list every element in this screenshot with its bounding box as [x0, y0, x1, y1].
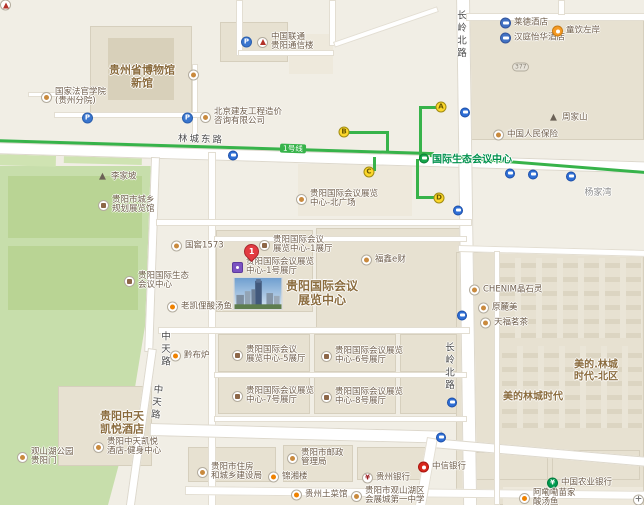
banky-icon: ¥: [362, 473, 373, 484]
area-label-meidi-lincheng-north: 美的.林城时代-北区: [574, 360, 618, 383]
poi-planning-hall[interactable]: 贵阳市城乡规划展览馆: [98, 196, 155, 214]
metro-station[interactable]: 国际生态会议中心: [419, 151, 512, 166]
poi-law-college[interactable]: 国家法官学院(贵州分院): [41, 88, 106, 106]
poi-badge-377[interactable]: 377: [512, 63, 529, 72]
metro-exit-C[interactable]: C: [364, 167, 375, 178]
poi-guizhou-bank[interactable]: ¥贵州银行: [362, 473, 410, 484]
map-canvas[interactable]: PP国家法官学院(贵州分院)P中国联通贵阳通信楼北京建友工程造价咨询有限公司莱德…: [0, 0, 644, 505]
dot-icon: [469, 285, 480, 296]
rest-icon: [291, 490, 302, 501]
poi-label: 贵阳国际生态会议中心: [138, 272, 189, 290]
poi-label: 贵阳国际会议展览中心-北广场: [310, 190, 378, 208]
poi-fuxin-ecai[interactable]: 福鑫e财: [361, 255, 406, 266]
park-field: [8, 246, 138, 310]
area-label-exhibition-center: 贵阳国际会议展览中心: [286, 280, 358, 308]
bldg-icon: [124, 276, 135, 287]
metro-exit-A[interactable]: A: [436, 102, 447, 113]
bankgreen-icon: ¥: [547, 478, 558, 489]
dot-icon: [200, 112, 211, 123]
poi-hall-6[interactable]: 贵阳国际会议展览中心-6号展厅: [321, 347, 403, 365]
cafe-icon: [552, 26, 563, 37]
poi-hall-1[interactable]: 贵阳国际会议展览中心-1展厅: [259, 236, 332, 254]
bus-icon: [528, 169, 538, 179]
area-label-meidi-lincheng: 美的林城时代: [503, 391, 563, 403]
road: [158, 327, 470, 334]
bus-icon: [460, 107, 470, 117]
hotel-icon: [500, 33, 511, 44]
poi-label: 贵阳国际会议展览中心-1展厅: [273, 236, 332, 254]
road-label: 林城东路: [178, 130, 224, 146]
purple-icon: [232, 262, 243, 273]
poi-laide-hotel[interactable]: 莱德酒店: [500, 18, 548, 29]
road: [214, 236, 467, 242]
poi-label: CHENIM晶石灵: [483, 286, 542, 295]
poi-jinxianglou[interactable]: 锦湘楼: [268, 472, 308, 483]
road: [329, 0, 336, 46]
poi-laokaili-fish[interactable]: 老凯俚酸汤鱼: [167, 302, 232, 313]
poi-hyatt-gym[interactable]: 贵阳中天凯悦酒店-健身中心: [93, 438, 161, 456]
poi-tucaiguan[interactable]: 贵州土菜馆: [291, 490, 348, 501]
poi-label: 贵阳国际会议展览中心-5展厅: [246, 346, 305, 364]
bus-stop-icon[interactable]: [436, 424, 446, 443]
poi-label: 贵阳市邮政管理局: [301, 449, 344, 467]
poi-zhoujiashan[interactable]: ▲周家山: [548, 113, 588, 124]
poi-abc-bank[interactable]: ¥中国农业银行: [547, 478, 612, 489]
poi-label: 贵阳国际会议展览中心-1号展厅: [246, 258, 314, 276]
area-label-yangjiawan: 杨家湾: [584, 188, 611, 198]
bus-icon: [436, 432, 446, 442]
poi-lijiapo[interactable]: ▲李家坡: [97, 172, 137, 183]
bus-icon: [566, 171, 576, 181]
road-label: 中天路: [157, 331, 171, 369]
metro-line-label: 1号线: [280, 144, 306, 154]
poi-parking-museum-west[interactable]: P: [82, 113, 93, 124]
road-south: [150, 423, 442, 444]
exit-path: [386, 131, 389, 152]
bus-stop-icon[interactable]: [566, 163, 576, 182]
bldg-icon: [232, 391, 243, 402]
poi-corner-cut[interactable]: [0, 0, 11, 11]
dot-icon: [93, 442, 104, 453]
poi-yuanlumei[interactable]: 原麓美: [478, 303, 518, 314]
dot-icon: [493, 130, 504, 141]
bldg-icon: [98, 200, 109, 211]
road: [236, 0, 243, 56]
poi-eco-conference-center[interactable]: 贵阳国际生态会议中心: [124, 272, 189, 290]
poi-label: 贵阳市观山湖区会展城第一中学: [365, 487, 425, 505]
poi-label: 锦湘楼: [282, 473, 308, 482]
area-label-guizhou-museum: 贵州省博物馆新馆: [109, 64, 175, 89]
mtn-icon: ▲: [548, 113, 559, 124]
poi-photo-thumbnail[interactable]: [233, 277, 283, 310]
poi-label: 国窖1573: [185, 242, 224, 251]
poi-housing-bureau[interactable]: 贵阳市住房和城乡建设局: [197, 463, 262, 481]
rest-icon: [268, 472, 279, 483]
poi-label: 贵阳市住房和城乡建设局: [211, 463, 262, 481]
poi-no1-middle-school[interactable]: 贵阳市观山湖区会展城第一中学: [351, 487, 425, 505]
bus-icon: [453, 205, 463, 215]
metro-station-label: 国际生态会议中心: [432, 151, 512, 166]
dot-icon: [478, 303, 489, 314]
dot-icon: [41, 92, 52, 103]
poi-label: 天福茗茶: [494, 319, 528, 328]
metro-exit-D[interactable]: D: [434, 193, 445, 204]
road-label: 中天路: [146, 383, 164, 422]
road-label: 长岭北路: [441, 342, 455, 392]
poi-postal-bureau[interactable]: 贵阳市邮政管理局: [287, 449, 344, 467]
park-icon: P: [182, 113, 193, 124]
poi-parking-museum-east[interactable]: P: [182, 113, 193, 124]
road: [156, 219, 472, 226]
poi-zuoan-cafe[interactable]: 童饮左岸: [552, 26, 600, 37]
poi-label: 中国人民保险: [507, 131, 558, 140]
dot-icon: [188, 70, 199, 81]
bus-icon: [447, 397, 457, 407]
poi-label: 贵州土菜馆: [305, 491, 348, 500]
metro-exit-B[interactable]: B: [339, 127, 350, 138]
redb-icon: [0, 0, 11, 11]
poi-qianbulu[interactable]: 黔布炉: [170, 351, 210, 362]
bankred-icon: [418, 462, 429, 473]
poi-label: 中信银行: [432, 463, 466, 472]
park-icon: P: [82, 113, 93, 124]
bldg-icon: [321, 351, 332, 362]
poi-label: 福鑫e财: [375, 256, 406, 265]
rest-icon: [519, 493, 530, 504]
poi-alele-fish[interactable]: 阿嘞嘞苗家酸汤鱼: [519, 489, 576, 505]
poi-label: 贵州银行: [376, 474, 410, 483]
poi-plus-poi[interactable]: +: [633, 495, 644, 505]
road-label: 长岭北路: [453, 10, 467, 60]
poi-label: 贵阳国际会议展览中心-6号展厅: [335, 347, 403, 365]
road: [333, 6, 439, 47]
plus-icon: +: [633, 495, 644, 505]
poi-label: 黔布炉: [184, 352, 210, 361]
road: [558, 0, 565, 15]
poi-label: 贵阳市城乡规划展览馆: [112, 196, 155, 214]
bus-icon: [505, 168, 515, 178]
poi-label: 原麓美: [492, 304, 518, 313]
poi-museum-dot[interactable]: [188, 70, 199, 81]
poi-hall-5[interactable]: 贵阳国际会议展览中心-5展厅: [232, 346, 305, 364]
bus-icon: [457, 310, 467, 320]
poi-label: 贵阳国际会议展览中心-8号展厅: [335, 388, 403, 406]
exit-path: [349, 131, 388, 134]
poi-hall-7[interactable]: 贵阳国际会议展览中心-7号展厅: [232, 387, 314, 405]
poi-label: 贵阳国际会议展览中心-7号展厅: [246, 387, 314, 405]
redb-icon: [257, 37, 268, 48]
dot-icon: [287, 453, 298, 464]
poi-label: 莱德酒店: [514, 19, 548, 28]
poi-guojiao-1573[interactable]: 国窖1573: [171, 241, 224, 252]
dot-icon: [361, 255, 372, 266]
bus-stop-icon[interactable]: [460, 99, 470, 118]
poi-hall-1hao[interactable]: 贵阳国际会议展览中心-1号展厅: [232, 258, 314, 276]
road: [466, 13, 644, 21]
residential-pattern: [502, 346, 642, 428]
hotel-icon: [500, 18, 511, 29]
poi-label: 中国联通贵阳通信楼: [271, 33, 314, 51]
dot-icon: [351, 491, 362, 502]
poi-label: 老凯俚酸汤鱼: [181, 303, 232, 312]
exit-path: [419, 106, 437, 109]
mtn-icon: ▲: [97, 172, 108, 183]
poi-picc[interactable]: 中国人民保险: [493, 130, 558, 141]
poi-parking-unicom[interactable]: P: [241, 37, 252, 48]
bus-stop-icon[interactable]: [528, 161, 538, 180]
bus-stop-icon[interactable]: [453, 197, 463, 216]
poi-label: 贵阳中天凯悦酒店-健身中心: [107, 438, 161, 456]
poi-label: 国家法官学院(贵州分院): [55, 88, 106, 106]
poi-jianyou-consulting[interactable]: 北京建友工程造价咨询有限公司: [200, 108, 282, 126]
poi-label: 童饮左岸: [566, 27, 600, 36]
bldg-icon: [232, 350, 243, 361]
rest-icon: [170, 351, 181, 362]
poi-china-unicom[interactable]: 中国联通贵阳通信楼: [257, 33, 314, 51]
poi-label: 观山湖公园贵阳门: [31, 448, 74, 466]
poi-park-gate[interactable]: 观山湖公园贵阳门: [17, 448, 74, 466]
metro-train-icon: [419, 153, 429, 163]
dot-icon: [17, 452, 28, 463]
park-icon: P: [241, 37, 252, 48]
poi-label: 李家坡: [111, 173, 137, 182]
dot-icon: [296, 194, 307, 205]
road: [214, 372, 467, 378]
dot-icon: [197, 467, 208, 478]
road: [214, 416, 467, 422]
poi-north-plaza[interactable]: 贵阳国际会议展览中心-北广场: [296, 190, 378, 208]
badge-icon: 377: [512, 63, 529, 72]
bldg-icon: [321, 392, 332, 403]
poi-chenim[interactable]: CHENIM晶石灵: [469, 285, 542, 296]
bus-stop-icon[interactable]: [457, 302, 467, 321]
poi-hall-8[interactable]: 贵阳国际会议展览中心-8号展厅: [321, 388, 403, 406]
poi-label: 中国农业银行: [561, 479, 612, 488]
poi-label: 北京建友工程造价咨询有限公司: [214, 108, 282, 126]
poi-label: 周家山: [562, 114, 588, 123]
area-label-hyatt-hotel: 贵阳中天凯悦酒店: [100, 410, 144, 435]
poi-citic-bank[interactable]: 中信银行: [418, 462, 466, 473]
poi-tianfu-tea[interactable]: 天福茗茶: [480, 318, 528, 329]
bldg-icon: [259, 240, 270, 251]
bus-stop-icon[interactable]: [228, 142, 238, 161]
dot-icon: [171, 241, 182, 252]
poi-label: 阿嘞嘞苗家酸汤鱼: [533, 489, 576, 505]
rest-icon: [167, 302, 178, 313]
bus-icon: [228, 150, 238, 160]
dot-icon: [480, 318, 491, 329]
